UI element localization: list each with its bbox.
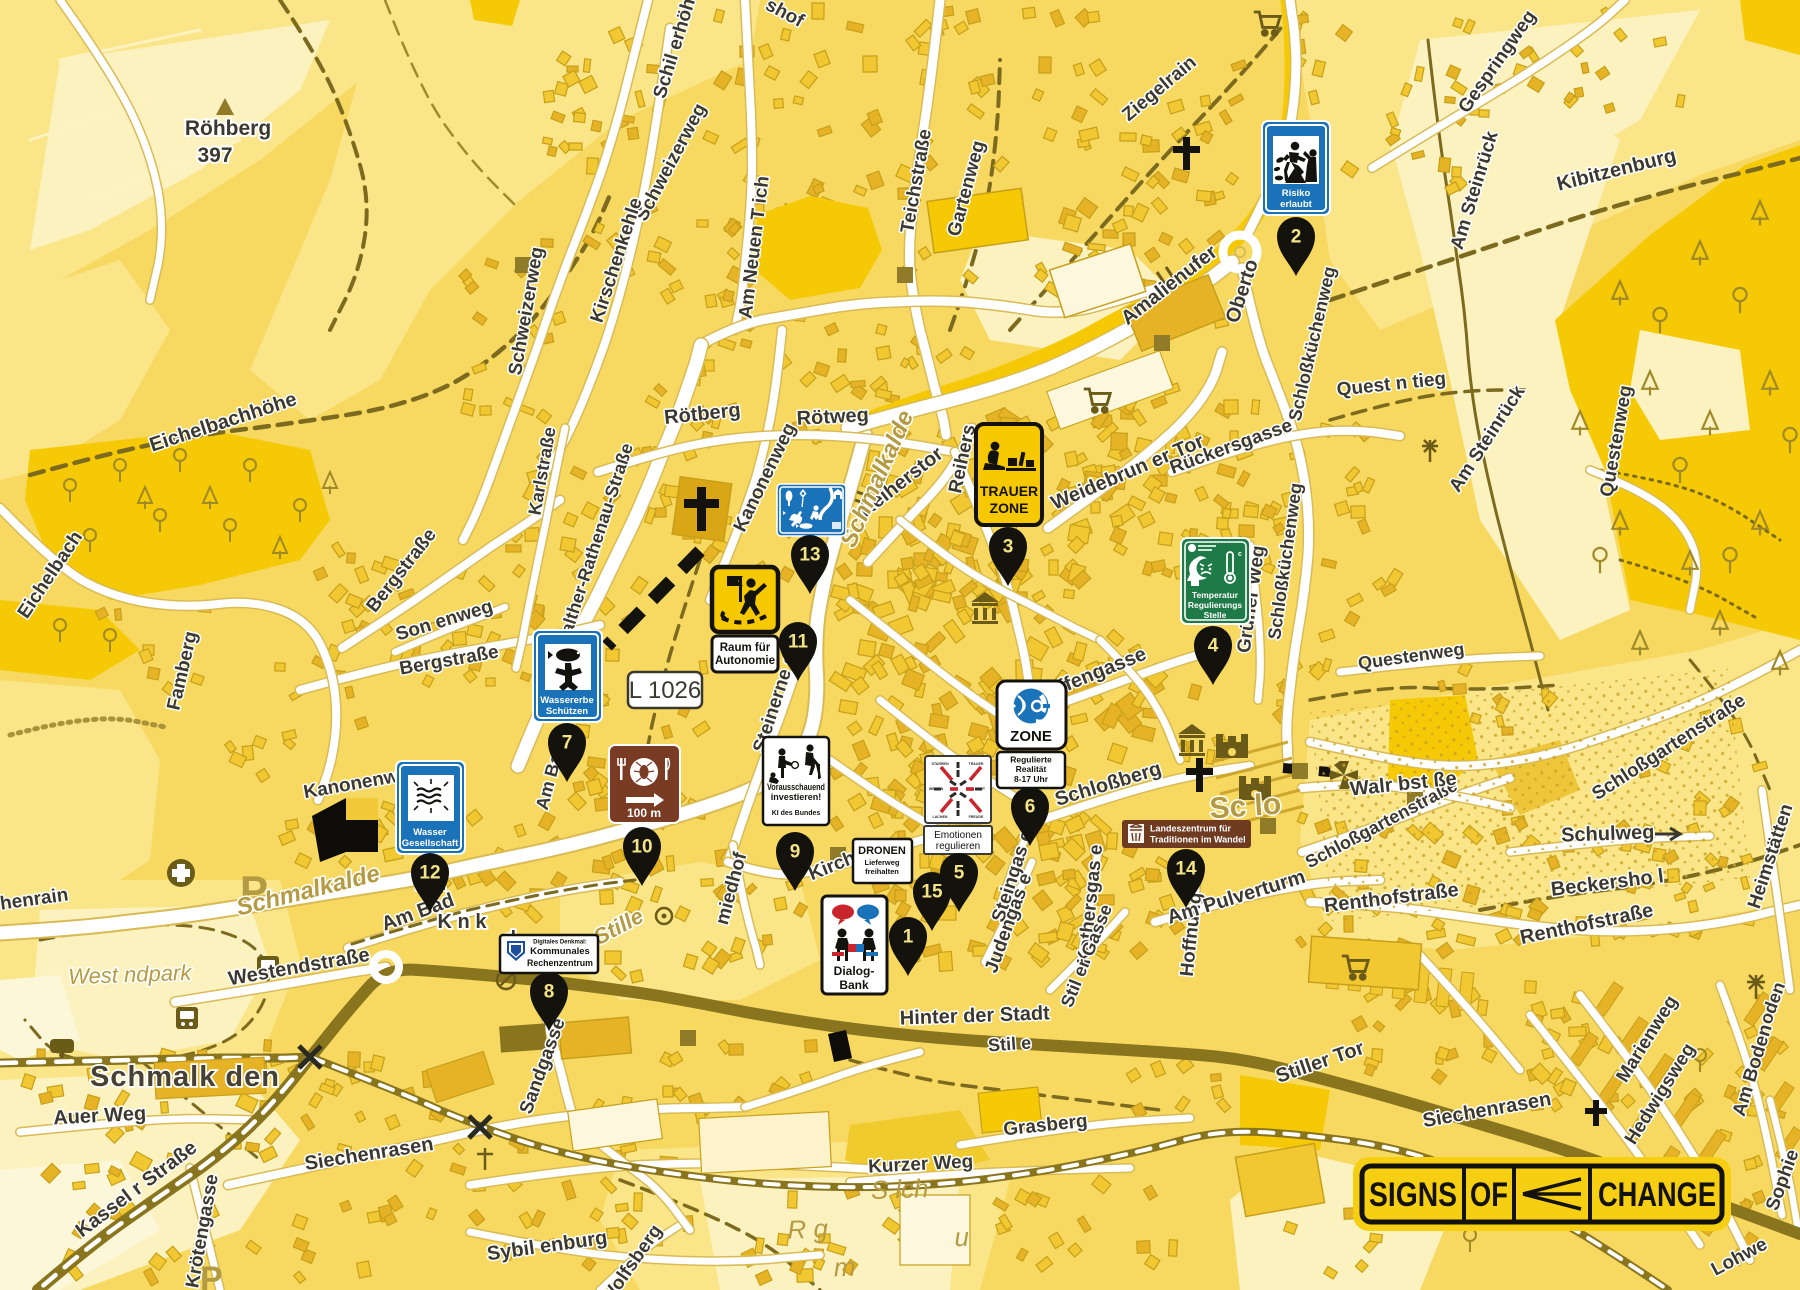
svg-text:OF: OF: [1470, 1176, 1508, 1214]
svg-text:CHANGE: CHANGE: [1598, 1176, 1716, 1214]
svg-text:11: 11: [788, 632, 809, 653]
svg-text:3: 3: [1003, 537, 1014, 558]
svg-text:WEINEN: WEINEN: [929, 787, 944, 791]
svg-text:Stelle: Stelle: [1204, 610, 1227, 620]
svg-text:freihalten: freihalten: [865, 867, 899, 876]
svg-text:Kommunales: Kommunales: [530, 946, 590, 957]
svg-text:TRAUER: TRAUER: [969, 762, 984, 766]
svg-text:Vorausschauend: Vorausschauend: [767, 782, 825, 792]
svg-text:FREUDE: FREUDE: [969, 815, 984, 819]
svg-text:9: 9: [790, 842, 801, 863]
svg-text:6: 6: [1025, 797, 1036, 818]
svg-text:Regulierte: Regulierte: [1010, 755, 1052, 765]
svg-text:ZONE: ZONE: [1010, 728, 1052, 745]
svg-text:Traditionen im Wandel: Traditionen im Wandel: [1150, 835, 1246, 845]
svg-text:Autonomie: Autonomie: [715, 655, 775, 667]
svg-text:14: 14: [1175, 859, 1197, 880]
svg-text:4: 4: [1208, 636, 1219, 657]
svg-text:STARREN: STARREN: [931, 762, 949, 766]
svg-text:Schulweg: Schulweg: [1561, 821, 1655, 846]
svg-text:Röhberg: Röhberg: [185, 117, 271, 140]
svg-text:R g: R g: [787, 1213, 829, 1244]
svg-text:WUT: WUT: [977, 787, 986, 791]
svg-text:Wasser: Wasser: [413, 827, 447, 838]
svg-text:15: 15: [921, 882, 943, 903]
svg-text:u: u: [954, 1222, 970, 1252]
svg-text:erlaubt: erlaubt: [1280, 199, 1313, 210]
svg-text:100 m: 100 m: [627, 806, 661, 820]
svg-text:c: c: [1238, 551, 1242, 558]
svg-text:397: 397: [197, 144, 232, 167]
svg-text:Rechenzentrum: Rechenzentrum: [527, 958, 593, 969]
svg-text:10: 10: [631, 837, 652, 858]
svg-text:Stil e: Stil e: [987, 1033, 1031, 1056]
svg-text:Digitales Denkmal:: Digitales Denkmal:: [533, 940, 587, 946]
svg-text:Temperatur: Temperatur: [1192, 590, 1239, 600]
svg-text:2: 2: [1291, 227, 1302, 248]
svg-text:13: 13: [799, 545, 820, 566]
svg-text:Landeszentrum für: Landeszentrum für: [1150, 824, 1232, 834]
svg-text:Raum für: Raum für: [720, 642, 771, 654]
svg-text:LACHEN: LACHEN: [933, 815, 948, 819]
svg-text:Gesellschaft: Gesellschaft: [402, 838, 459, 849]
svg-text:DRONEN: DRONEN: [858, 845, 906, 857]
svg-text:Wassererbe: Wassererbe: [540, 695, 594, 706]
svg-text:m: m: [833, 1252, 856, 1283]
svg-text:West ndpark: West ndpark: [68, 960, 193, 989]
svg-text:Schmalk den: Schmalk den: [90, 1061, 280, 1093]
svg-text:S lch: S lch: [870, 1173, 929, 1205]
svg-text:regulieren: regulieren: [936, 841, 980, 852]
svg-text:Rötweg: Rötweg: [796, 404, 869, 430]
svg-text:7: 7: [562, 733, 573, 754]
svg-text:K n k: K n k: [438, 911, 488, 933]
svg-text:Emotionen: Emotionen: [934, 830, 982, 841]
svg-text:Sc lo: Sc lo: [1208, 788, 1282, 826]
svg-text:8: 8: [544, 982, 555, 1003]
svg-text:8-17 Uhr: 8-17 Uhr: [1014, 774, 1049, 784]
svg-text:SIGNS: SIGNS: [1369, 1176, 1457, 1214]
svg-text:ZONE: ZONE: [990, 500, 1029, 516]
svg-text:Realität: Realität: [1016, 764, 1047, 774]
svg-text:Dialog-: Dialog-: [834, 964, 875, 978]
svg-text:Regulierungs: Regulierungs: [1188, 600, 1243, 610]
svg-text:investieren!: investieren!: [771, 792, 822, 802]
svg-text:TRAUER: TRAUER: [980, 483, 1038, 499]
svg-text:Bank: Bank: [839, 978, 869, 992]
svg-text:Lieferweg: Lieferweg: [864, 858, 899, 867]
svg-text:L 1026: L 1026: [629, 677, 702, 704]
svg-text:Risiko: Risiko: [1282, 188, 1311, 199]
svg-text:12: 12: [419, 863, 440, 884]
svg-text:Schützen: Schützen: [546, 706, 588, 717]
svg-text:1: 1: [903, 927, 914, 948]
svg-text:5: 5: [954, 863, 965, 884]
svg-text:KI des Bundes: KI des Bundes: [772, 810, 821, 817]
